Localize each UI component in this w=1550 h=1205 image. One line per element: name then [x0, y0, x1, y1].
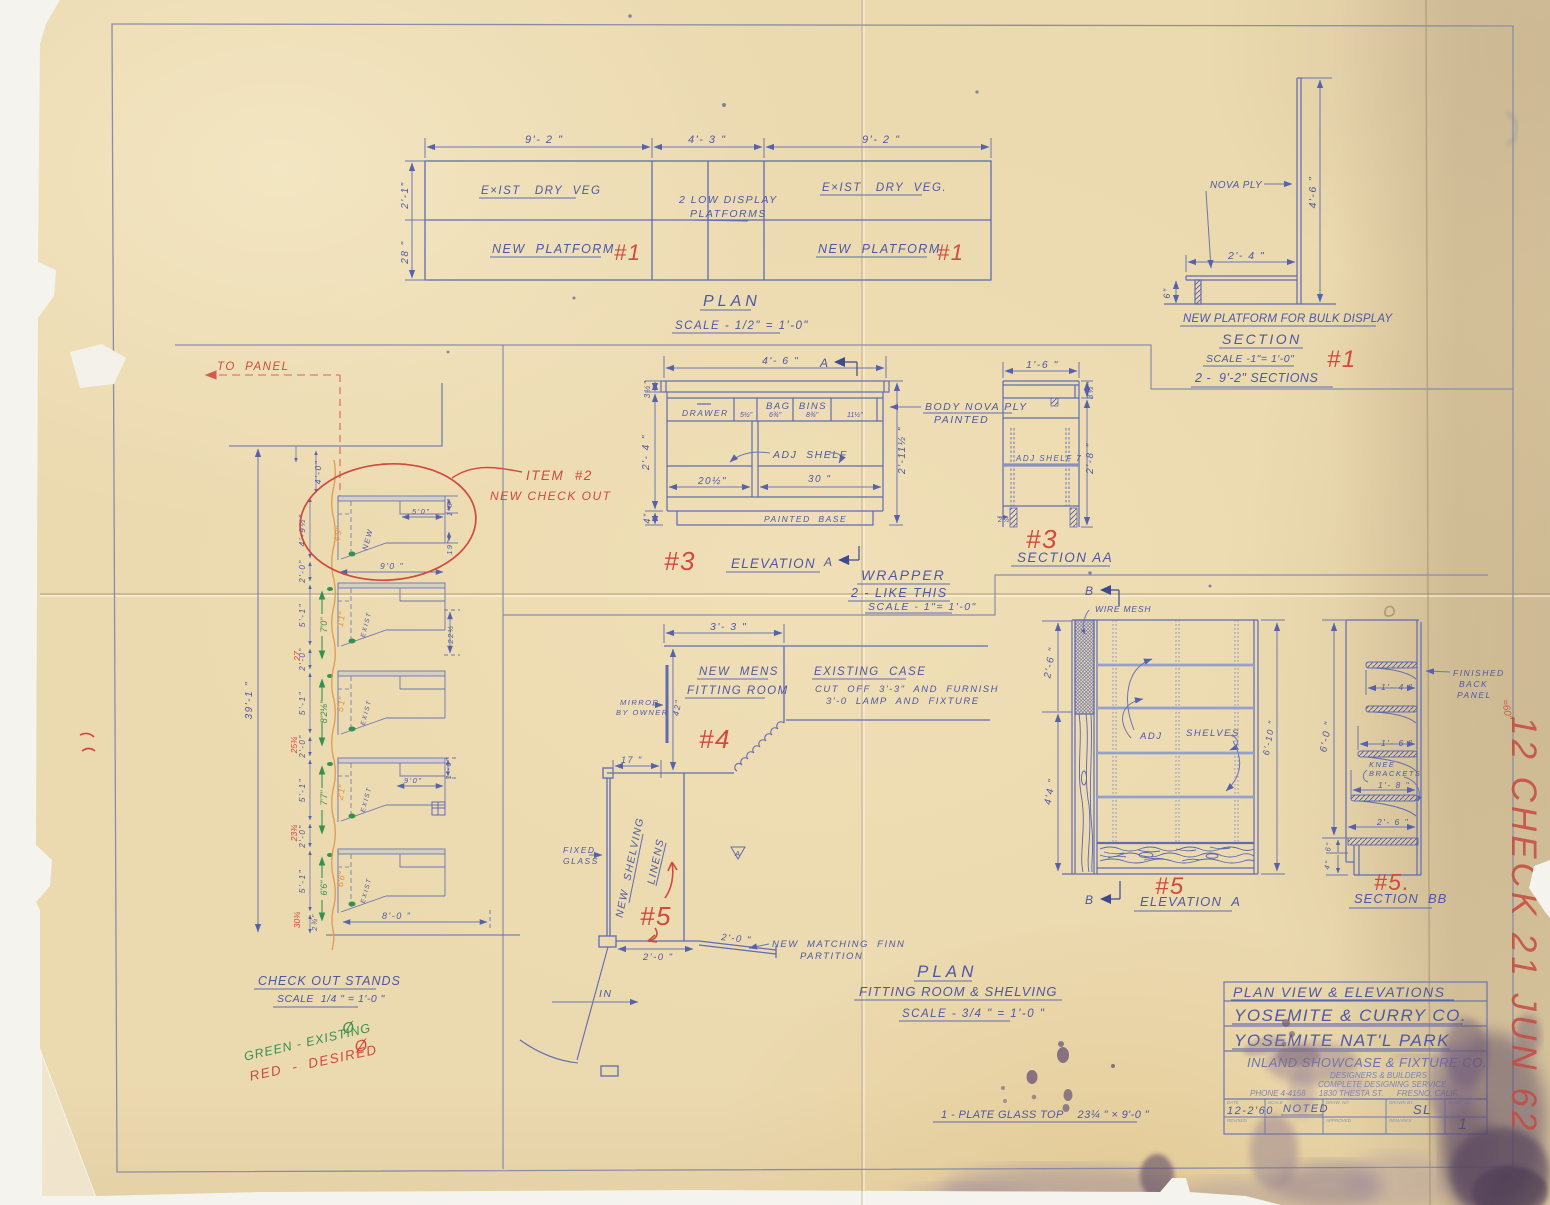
svg-text:FIXED: FIXED — [563, 845, 596, 855]
svg-text:BRACKETS: BRACKETS — [1369, 769, 1421, 778]
svg-text:4'-9½": 4'-9½" — [297, 513, 307, 546]
svg-text:19": 19" — [445, 539, 454, 555]
svg-text:EXIST: EXIST — [360, 786, 374, 813]
svg-text:SHELVES: SHELVES — [1186, 728, 1240, 739]
svg-text:NEW PLATFORM: NEW PLATFORM — [818, 242, 941, 256]
svg-text:9'0": 9'0" — [404, 776, 422, 785]
svg-text:NEW CHECK OUT: NEW CHECK OUT — [490, 489, 612, 503]
svg-text:EXISTING CASE: EXISTING CASE — [814, 666, 926, 678]
svg-text:4'-0": 4'-0" — [313, 460, 323, 484]
svg-text:4'9": 4'9" — [332, 525, 345, 542]
svg-text:APPROVED: APPROVED — [1325, 1118, 1352, 1123]
svg-text:2 LOW DISPLAY: 2 LOW DISPLAY — [678, 194, 778, 206]
svg-text:SCALE - 1"= 1'-0": SCALE - 1"= 1'-0" — [868, 601, 977, 613]
svg-text:PAINTED: PAINTED — [934, 414, 989, 426]
svg-text:ADJ: ADJ — [1139, 731, 1162, 742]
svg-text:YOSEMITE & CURRY CO.: YOSEMITE & CURRY CO. — [1234, 1006, 1467, 1025]
svg-text:9'- 2 ": 9'- 2 " — [525, 134, 564, 146]
svg-text:FINISHED: FINISHED — [1453, 668, 1505, 678]
svg-text:NOVA PLY: NOVA PLY — [1210, 180, 1263, 191]
svg-text:2½: 2½ — [997, 516, 1011, 524]
svg-text:REVISED: REVISED — [1227, 1118, 1248, 1123]
svg-text:E×IST DRY VEG.: E×IST DRY VEG. — [822, 182, 947, 194]
svg-text:A: A — [734, 849, 742, 858]
svg-text:SCALE -1"= 1'-0": SCALE -1"= 1'-0" — [1206, 353, 1295, 365]
svg-text:39'-1 ": 39'-1 " — [244, 681, 255, 720]
svg-text:25¾: 25¾ — [289, 737, 299, 755]
svg-text:30¾: 30¾ — [292, 912, 302, 929]
svg-text:6¾": 6¾" — [769, 412, 782, 419]
svg-text:42": 42" — [671, 698, 684, 716]
svg-text:2'- 4 ": 2'- 4 " — [1227, 250, 1265, 262]
svg-text:6'-0 ": 6'-0 " — [1318, 720, 1334, 753]
svg-text:5'1": 5'1" — [335, 695, 348, 712]
svg-text:6'6": 6'6" — [319, 880, 329, 896]
svg-text:GLASS: GLASS — [563, 856, 599, 866]
svg-text:4'- 3 ": 4'- 3 " — [688, 134, 727, 146]
svg-text:2'-6 ": 2'-6 " — [1042, 646, 1059, 680]
svg-text:6": 6" — [1323, 841, 1334, 852]
svg-text:5½": 5½" — [740, 411, 753, 419]
svg-text:4": 4" — [1322, 859, 1333, 870]
svg-text:3'- 3 ": 3'- 3 " — [710, 621, 747, 633]
svg-text:2'- 4 ": 2'- 4 " — [641, 434, 652, 471]
svg-text:3½": 3½" — [643, 380, 652, 398]
svg-text:SCALE 1/4 " = 1'-0 ": SCALE 1/4 " = 1'-0 " — [277, 993, 386, 1005]
svg-text:IN: IN — [599, 988, 613, 1000]
svg-text:LINENS: LINENS — [645, 837, 666, 885]
svg-text:20½": 20½" — [697, 476, 727, 487]
svg-text:PLAN: PLAN — [917, 962, 977, 981]
svg-text:A: A — [819, 356, 830, 370]
svg-text:ITEM #2: ITEM #2 — [526, 468, 593, 483]
svg-text:BACK: BACK — [1459, 679, 1488, 689]
svg-text:BODY NOVA PLY: BODY NOVA PLY — [925, 401, 1028, 413]
svg-text:DRAWN BY: DRAWN BY — [1389, 1100, 1414, 1105]
svg-text:4": 4" — [642, 512, 652, 523]
svg-text:2'-11½ ": 2'-11½ " — [897, 426, 908, 475]
svg-text:ADJ SHELF: ADJ SHELF — [772, 449, 848, 461]
svg-text:BAG BINS: BAG BINS — [766, 401, 827, 412]
svg-text:5'0": 5'0" — [412, 507, 430, 516]
svg-text:PANEL: PANEL — [1457, 690, 1492, 700]
svg-text:BY OWNER: BY OWNER — [616, 708, 669, 717]
svg-text:27: 27 — [292, 651, 302, 662]
svg-text:2'1": 2'1" — [335, 783, 348, 801]
svg-text:#5: #5 — [640, 901, 672, 931]
svg-text:SECTION BB: SECTION BB — [1354, 891, 1447, 906]
svg-text:2¾": 2¾" — [310, 913, 319, 932]
svg-text:1 - PLATE GLASS TOP 23¼ " ×: 1 - PLATE GLASS TOP 23¼ " × 9'-0 " — [941, 1109, 1150, 1121]
svg-text:CUT OFF 3'-3" AND FURNISH: CUT OFF 3'-3" AND FURNISH — [815, 684, 999, 695]
svg-text:E×IST DRY VEG: E×IST DRY VEG — [481, 185, 601, 197]
svg-text:1'-6 ": 1'-6 " — [1026, 359, 1059, 371]
svg-text:ADJ SHELF 7: ADJ SHELF 7 — [1015, 454, 1082, 463]
svg-text:PLATFORMS: PLATFORMS — [690, 208, 767, 220]
svg-text:8'2⅛": 8'2⅛" — [319, 700, 329, 723]
svg-text:KNEE: KNEE — [1369, 760, 1395, 769]
svg-text:2 - LIKE THIS: 2 - LIKE THIS — [850, 586, 948, 600]
svg-text:B: B — [1085, 584, 1095, 598]
svg-text:EXIST: EXIST — [360, 699, 374, 726]
svg-text:REMARKS: REMARKS — [1389, 1118, 1411, 1123]
svg-text:4'-6 ": 4'-6 " — [1307, 176, 1319, 209]
svg-text:2'- 6 ": 2'- 6 " — [1376, 817, 1409, 827]
svg-text:PARTITION: PARTITION — [800, 951, 863, 962]
svg-text:6": 6" — [1162, 287, 1172, 298]
svg-text:12 CHECK 21 JUN 62: 12 CHECK 21 JUN 62 — [1504, 716, 1543, 1134]
svg-text:#1: #1 — [1327, 346, 1357, 373]
svg-text:1'6": 1'6" — [445, 498, 454, 516]
svg-text:≈60": ≈60" — [1499, 699, 1513, 721]
svg-text:A: A — [823, 555, 834, 569]
svg-text:SCALE - 1/2" = 1'-0": SCALE - 1/2" = 1'-0" — [675, 320, 809, 332]
svg-text:6'6": 6'6" — [335, 870, 348, 887]
svg-text:ELEVATION A: ELEVATION A — [1140, 894, 1241, 909]
svg-text:TO PANEL: TO PANEL — [217, 361, 290, 373]
svg-text:NEW PLATFORM FOR BULK DISPLAY: NEW PLATFORM FOR BULK DISPLAY — [1183, 313, 1393, 325]
svg-text:#1: #1 — [937, 240, 964, 265]
svg-text:SCALE - 3/4 " = 1'-0 ": SCALE - 3/4 " = 1'-0 " — [902, 1008, 1045, 1020]
svg-text:NEW PLATFORM: NEW PLATFORM — [492, 242, 615, 256]
svg-text:PLAN VIEW & ELEVATIONS: PLAN VIEW & ELEVATIONS — [1233, 984, 1445, 1000]
svg-text:EXIST: EXIST — [360, 877, 374, 904]
svg-text:2'-0": 2'-0" — [298, 559, 307, 583]
svg-text:5'-1": 5'-1" — [297, 869, 307, 893]
svg-text:3'-0 LAMP AND FIXTURE: 3'-0 LAMP AND FIXTURE — [826, 696, 980, 707]
svg-text:1'- 4 ": 1'- 4 " — [1381, 682, 1413, 692]
svg-text:ELEVATION: ELEVATION — [731, 556, 816, 571]
svg-text:NEW MATCHING FINN: NEW MATCHING FINN — [772, 939, 905, 950]
svg-text:EXIST: EXIST — [360, 611, 374, 638]
svg-text:7'0": 7'0" — [319, 617, 329, 633]
svg-text:9'0 ": 9'0 " — [380, 561, 404, 571]
svg-text:1'-6": 1'-6" — [444, 757, 453, 779]
svg-text:8¾": 8¾" — [806, 412, 819, 419]
svg-text:1'- 6 ": 1'- 6 " — [1381, 738, 1413, 748]
svg-text:DRAW. NO: DRAW. NO — [1326, 1100, 1349, 1105]
svg-text:WRAPPER: WRAPPER — [861, 567, 946, 583]
svg-text:3½": 3½" — [1086, 381, 1095, 399]
svg-text:WIRE MESH: WIRE MESH — [1095, 604, 1151, 614]
svg-text:11½": 11½" — [847, 411, 863, 419]
svg-text:7'7": 7'7" — [319, 790, 329, 806]
svg-text:30 ": 30 " — [808, 474, 831, 485]
svg-text:PAINTED BASE: PAINTED BASE — [764, 514, 847, 524]
svg-text:SECTION: SECTION — [1222, 331, 1302, 347]
svg-text:CHECK OUT STANDS: CHECK OUT STANDS — [258, 974, 401, 988]
svg-text:5'-1": 5'-1" — [297, 603, 307, 627]
svg-text:PLAN: PLAN — [703, 293, 761, 310]
svg-text:8'-0 ": 8'-0 " — [382, 911, 411, 921]
svg-text:9'- 2 ": 9'- 2 " — [862, 134, 901, 146]
svg-text:2'-1": 2'-1" — [400, 181, 411, 209]
svg-text:22½: 22½ — [446, 624, 455, 644]
svg-text:28 ": 28 " — [400, 240, 411, 264]
svg-text:1'1": 1'1" — [335, 610, 348, 627]
svg-text:4'4 ": 4'4 " — [1043, 777, 1058, 805]
svg-text:B: B — [1085, 893, 1095, 907]
svg-text:2'-0": 2'-0" — [298, 734, 307, 758]
svg-text:2'-8 ": 2'-8 " — [1085, 442, 1096, 475]
svg-text:5'-1": 5'-1" — [297, 691, 307, 715]
svg-text:1'- 8 ": 1'- 8 " — [1378, 780, 1410, 790]
svg-text:DRAWER: DRAWER — [682, 408, 729, 418]
svg-text:FITTING ROOM & SHELVING: FITTING ROOM & SHELVING — [859, 984, 1058, 999]
svg-text:SECTION AA: SECTION AA — [1017, 550, 1113, 565]
svg-text:#3: #3 — [664, 546, 696, 576]
svg-text:6'-10 ": 6'-10 " — [1261, 719, 1277, 756]
svg-text:2 - 9'-2" SECTIONS: 2 - 9'-2" SECTIONS — [1194, 371, 1318, 385]
svg-text:2'-0": 2'-0" — [298, 824, 307, 848]
svg-text:12-2'60: 12-2'60 — [1227, 1105, 1274, 1117]
svg-text:23¾: 23¾ — [289, 825, 299, 843]
svg-text:5'-1": 5'-1" — [297, 778, 307, 802]
svg-text:#4: #4 — [699, 724, 731, 754]
svg-text:SL: SL — [1413, 1102, 1432, 1117]
svg-text:NEW MENS: NEW MENS — [699, 666, 779, 678]
svg-text:17 ": 17 " — [621, 755, 643, 765]
svg-text:FITTING ROOM: FITTING ROOM — [687, 685, 789, 697]
svg-text:2'-0 ": 2'-0 " — [642, 952, 674, 963]
svg-text:#1: #1 — [614, 240, 641, 265]
svg-text:MIRROR: MIRROR — [620, 698, 659, 707]
svg-text:4'- 6 ": 4'- 6 " — [762, 355, 799, 367]
